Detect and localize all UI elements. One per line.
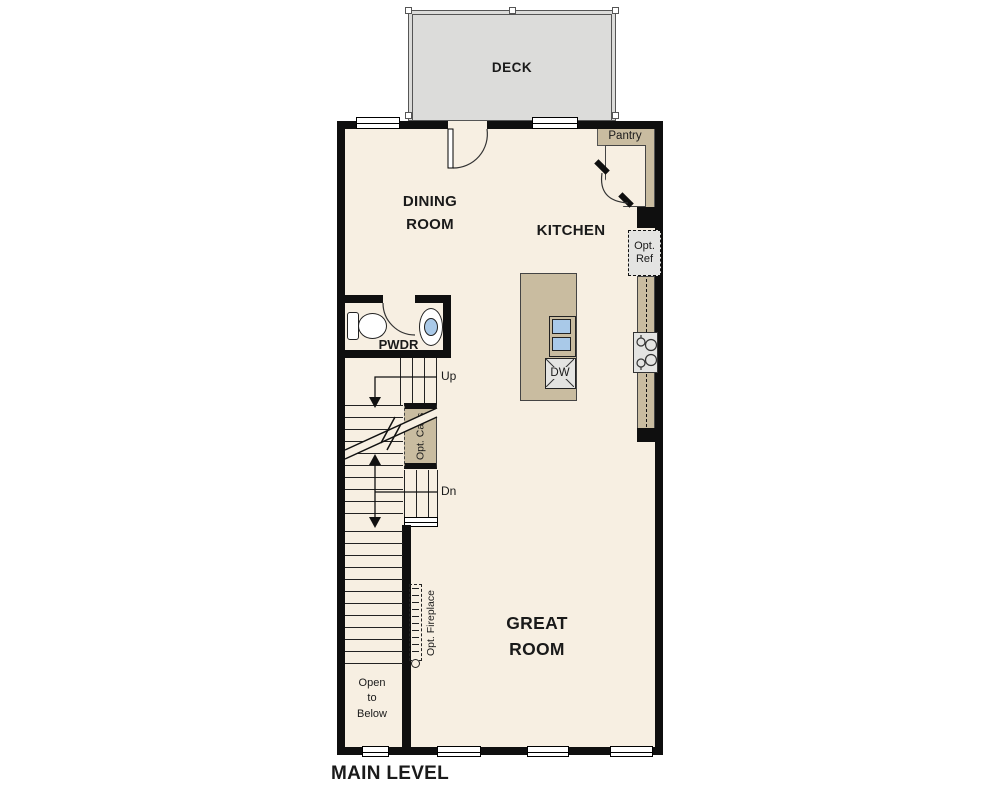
pwdr-sink-basin <box>424 318 438 336</box>
dining-room-label: DINING ROOM <box>382 191 478 236</box>
deck-door-arc <box>440 121 500 181</box>
up-label: Up <box>441 369 456 383</box>
window <box>356 117 400 129</box>
counter-end-wall <box>637 428 663 442</box>
window <box>610 746 653 757</box>
deck-post <box>405 7 412 14</box>
pantry-door-arc <box>590 155 650 215</box>
window <box>437 746 481 757</box>
sink-bowl <box>552 337 571 351</box>
deck-label: DECK <box>408 60 616 75</box>
pantry-label: Pantry <box>599 130 651 142</box>
window <box>362 746 389 757</box>
dn-label: Dn <box>441 484 456 498</box>
deck-post <box>405 112 412 119</box>
cooktop <box>633 332 658 373</box>
fireplace-hatch <box>412 588 419 657</box>
deck-post <box>509 7 516 14</box>
deck-post <box>612 7 619 14</box>
opt-ref-box: Opt. Ref <box>628 230 661 276</box>
kitchen-label: KITCHEN <box>528 222 614 239</box>
cooktop-burners <box>634 333 657 372</box>
pantry-wall-block <box>637 207 663 228</box>
deck-post <box>612 112 619 119</box>
fireplace-outline <box>409 584 422 661</box>
great-room-label: GREAT ROOM <box>482 610 592 663</box>
sink-bowl <box>552 319 571 334</box>
window <box>527 746 569 757</box>
toilet-bowl <box>358 313 387 339</box>
stair-treads-lower <box>345 531 403 665</box>
main-level-title: MAIN LEVEL <box>331 763 449 785</box>
dishwasher-label: DW <box>548 367 572 379</box>
floor-plan: DECK Pantry Opt. Ref <box>0 0 1000 800</box>
dishwasher-box: DW <box>545 358 576 389</box>
open-to-below-label: Open to Below <box>340 676 404 722</box>
island-sink <box>549 316 576 357</box>
fireplace-circle <box>411 659 420 668</box>
fireplace-label: Opt. Fireplace <box>424 580 438 666</box>
window <box>532 117 578 129</box>
